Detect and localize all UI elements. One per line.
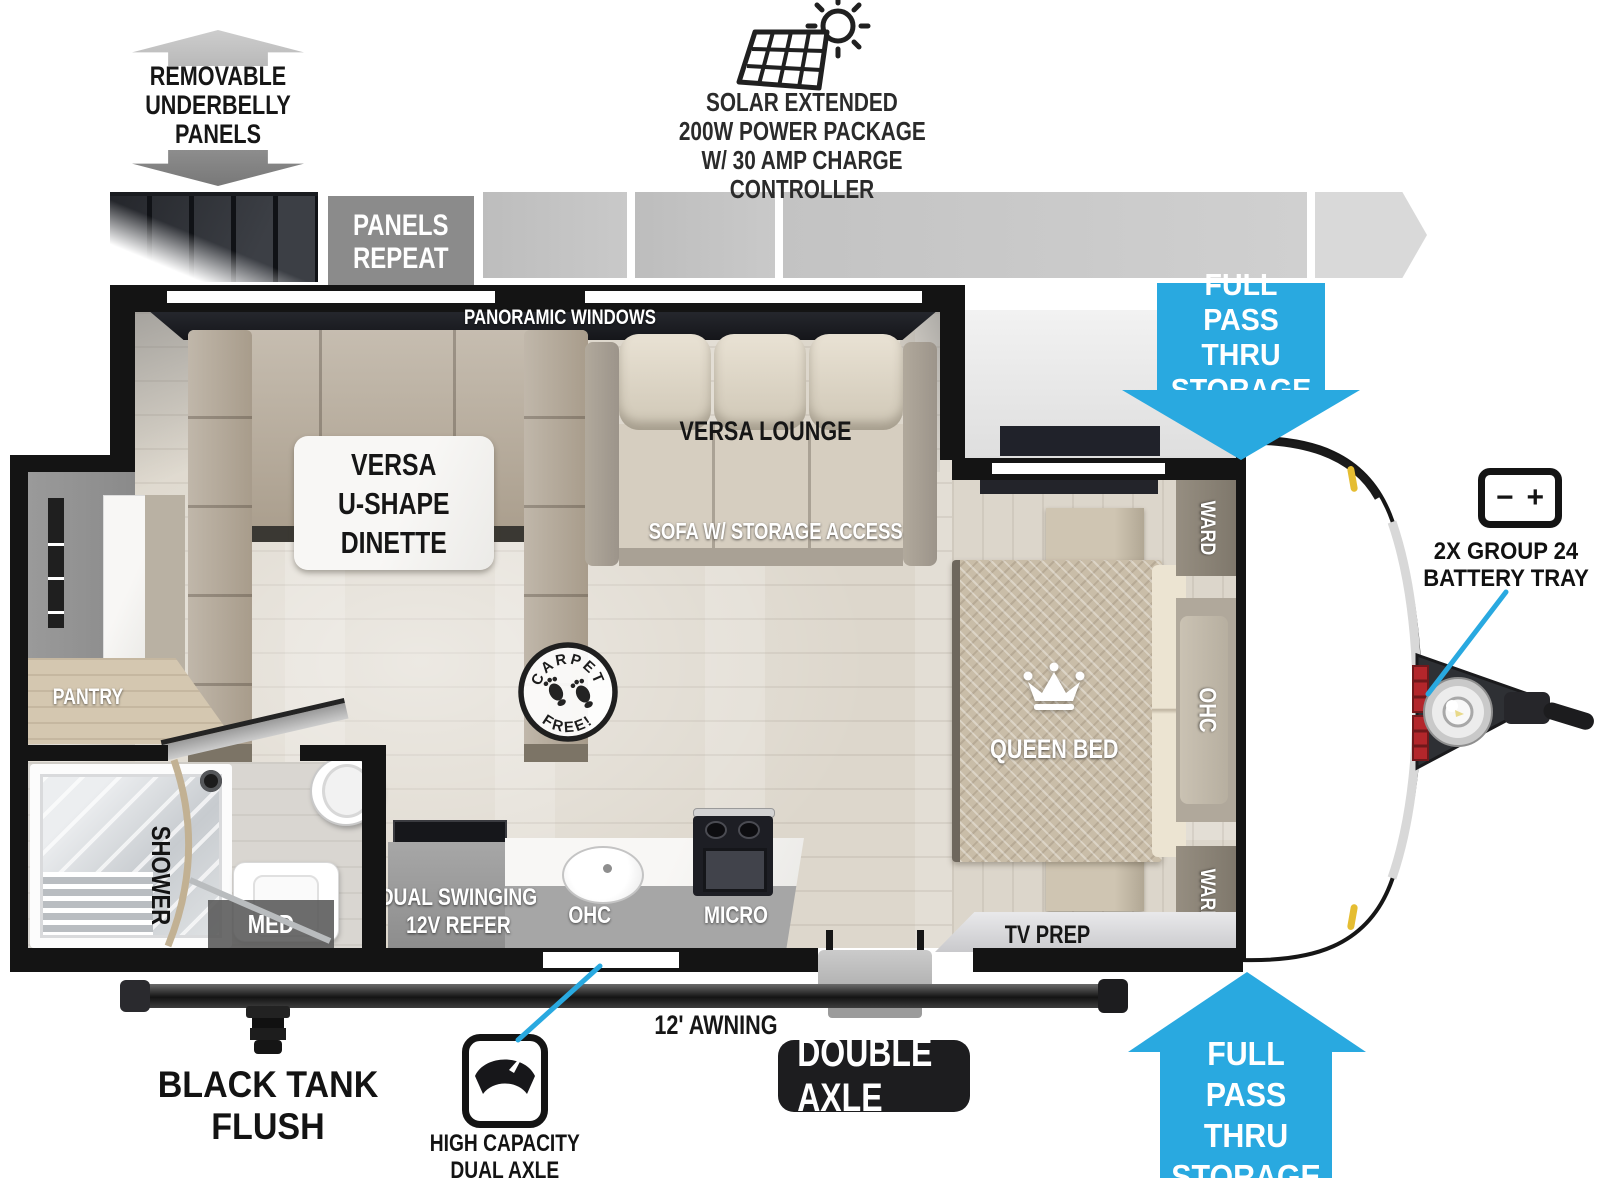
solar-line3: W/ 30 AMP CHARGE CONTROLLER	[642, 146, 962, 204]
black-tank-valve-1	[246, 1006, 290, 1018]
sofa-left-armrest	[585, 342, 619, 566]
wall-bath-top-left	[28, 745, 168, 761]
oven-window	[703, 848, 767, 892]
underbelly-down-arrow-icon	[132, 150, 304, 186]
solar-line2: 200W POWER PACKAGE	[679, 117, 926, 146]
wall-bottom-left	[10, 948, 818, 972]
pass-thru-window	[1000, 426, 1160, 456]
versa-lounge-text: VERSA LOUNGE	[680, 416, 852, 447]
shower-head-icon	[200, 770, 222, 792]
wall-bath-top-right	[300, 745, 362, 761]
battery-tray-text: 2X GROUP 24 BATTERY TRAY	[1423, 538, 1589, 592]
battery-minus-text: −	[1496, 483, 1514, 513]
pantry-label: PANTRY	[28, 684, 148, 710]
solar-package-label: SOLAR EXTENDED 200W POWER PACKAGE W/ 30 …	[602, 88, 1002, 204]
queen-bed-text: QUEEN BED	[990, 734, 1118, 765]
med-text: MED	[248, 909, 294, 940]
wall-left-upper	[110, 285, 135, 472]
awning-cap-right	[1098, 979, 1128, 1013]
crown-icon	[1020, 660, 1088, 714]
refer-label: DUAL SWINGING 12V REFER	[358, 884, 558, 940]
panels-repeat-label: PANELS REPEAT	[353, 209, 449, 275]
wall-jog	[10, 455, 135, 472]
versa-lounge-label: VERSA LOUNGE	[646, 416, 886, 447]
double-axle-text: DOUBLE AXLE	[797, 1031, 951, 1121]
propane-tank-icon	[1424, 678, 1492, 746]
sofa-storage-label: SOFA W/ STORAGE ACCESS	[616, 518, 936, 545]
awning-mount-marker	[543, 952, 679, 968]
queen-bed-label: QUEEN BED	[954, 734, 1154, 765]
stove-burner-left	[705, 821, 727, 839]
bed-head-window	[980, 480, 1158, 494]
underbelly-label: REMOVABLE UNDERBELLY PANELS	[108, 62, 328, 149]
sofa-storage-text: SOFA W/ STORAGE ACCESS	[649, 518, 903, 545]
pass-thru-bottom-text: FULL PASS THRU STORAGE	[1167, 1033, 1325, 1194]
wall-top-window-2	[585, 291, 922, 303]
ohc-bedroom-text: OHC	[1193, 687, 1221, 732]
double-axle-badge: DOUBLE AXLE	[778, 1040, 970, 1112]
micro-text: MICRO	[704, 902, 768, 930]
black-tank-valve-4	[254, 1040, 282, 1054]
kitchen-faucet	[603, 864, 612, 873]
pantry-slide-rail	[48, 498, 64, 628]
solar-line1: SOLAR EXTENDED	[706, 88, 898, 117]
solar-panel-icon	[737, 2, 867, 94]
med-badge: MED	[208, 900, 334, 948]
belly-panel-1	[483, 192, 627, 278]
awning-label: 12' AWNING	[606, 1010, 826, 1041]
kitchen-sink	[562, 846, 644, 904]
belly-panel-arrow	[1315, 192, 1427, 278]
sofa-skirt	[619, 548, 903, 566]
scale-icon-glyph	[469, 1041, 541, 1121]
pantry-rail-tick-1	[48, 543, 64, 546]
bedroom-front-window	[992, 463, 1165, 474]
underbelly-label-text: REMOVABLE UNDERBELLY PANELS	[145, 62, 291, 149]
wall-right	[1236, 455, 1246, 960]
entry-step-leg-left	[826, 930, 833, 952]
panels-repeat-badge: PANELS REPEAT	[328, 196, 474, 288]
battery-plus-text: +	[1526, 483, 1544, 513]
high-capacity-text: HIGH CAPACITY DUAL AXLE	[430, 1130, 580, 1184]
pantry-rail-tick-2	[48, 577, 64, 580]
pass-thru-top-text: FULL PASS THRU STORAGE	[1164, 267, 1319, 407]
panoramic-windows-label: PANORAMIC WINDOWS	[410, 306, 710, 330]
rv-floorplan-diagram: REMOVABLE UNDERBELLY PANELS PANELS REPEA…	[0, 0, 1600, 1194]
black-tank-flush-text: BLACK TANK FLUSH	[99, 1064, 438, 1148]
belly-panel-2	[635, 192, 775, 278]
kitchen-ohc-text: OHC	[569, 902, 612, 930]
hitch-assembly	[1400, 640, 1600, 780]
entry-step-leg-right	[917, 930, 924, 952]
battery-icon: − +	[1478, 468, 1562, 528]
pantry-side-cabinet	[145, 495, 185, 672]
high-capacity-label: HIGH CAPACITY DUAL AXLE	[398, 1130, 612, 1184]
kitchen-ohc-label: OHC	[540, 902, 640, 930]
panoramic-windows-text: PANORAMIC WINDOWS	[464, 306, 656, 330]
black-tank-flush-label: BLACK TANK FLUSH	[84, 1064, 452, 1148]
black-tank-valve-2	[252, 1018, 284, 1028]
pantry-text: PANTRY	[53, 684, 123, 710]
pantry-marble-column	[103, 495, 147, 669]
tv-prep-label: TV PREP	[947, 921, 1147, 950]
awning-cap-left	[120, 980, 150, 1012]
awning-text: 12' AWNING	[654, 1010, 777, 1041]
shower-text: SHOWER	[145, 825, 176, 924]
wall-divider-passthru	[940, 285, 965, 460]
micro-label: MICRO	[686, 902, 786, 930]
carpet-free-stamp: CARPET FREE!	[514, 638, 622, 746]
stove-burner-right	[738, 821, 760, 839]
black-tank-valve-3	[250, 1028, 286, 1040]
wall-bottom-right	[973, 948, 1243, 972]
dinette-label: VERSA U-SHAPE DINETTE	[338, 445, 450, 562]
wall-top-window-1	[167, 291, 495, 303]
shower-label: SHOWER	[130, 800, 190, 950]
refer-text: DUAL SWINGING 12V REFER	[379, 884, 537, 940]
wall-bath-right	[362, 745, 386, 952]
pass-thru-top-box: FULL PASS THRU STORAGE	[1157, 283, 1325, 391]
wall-far-left	[10, 455, 28, 972]
tv-prep-text: TV PREP	[1004, 921, 1090, 950]
pass-thru-bottom-box: FULL PASS THRU STORAGE	[1160, 1051, 1332, 1178]
ward-front-text: WARD	[1195, 501, 1219, 556]
battery-tray-label: 2X GROUP 24 BATTERY TRAY	[1396, 538, 1600, 592]
stove	[693, 816, 773, 896]
pantry-rail-tick-3	[48, 611, 64, 614]
dinette-table: VERSA U-SHAPE DINETTE	[294, 436, 494, 570]
underbelly-panel-photo	[110, 192, 318, 282]
dinette-bench-skirt-right	[524, 744, 588, 762]
awning-rail	[125, 984, 1127, 1008]
belly-panel-3	[783, 192, 1307, 278]
